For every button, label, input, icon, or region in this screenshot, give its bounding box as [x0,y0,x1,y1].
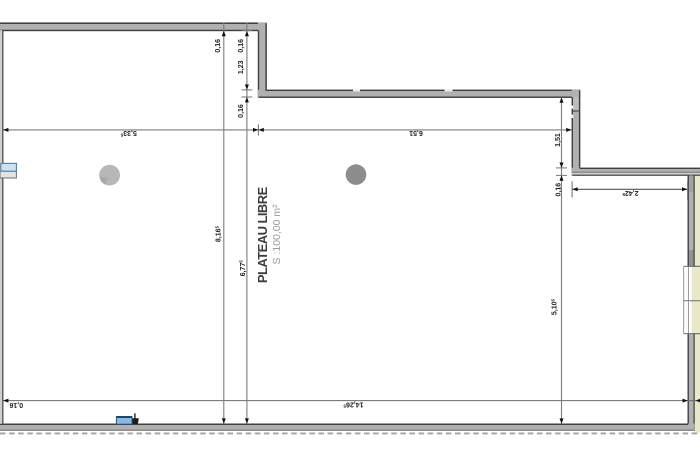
svg-text:0,16: 0,16 [555,183,562,197]
svg-text:0,16: 0,16 [238,104,245,118]
svg-text:14,265: 14,265 [343,401,364,409]
svg-text:PLATEAU LIBRE: PLATEAU LIBRE [255,186,270,283]
svg-text:1,51: 1,51 [555,133,562,147]
svg-text:0,16: 0,16 [215,39,222,53]
svg-text:6,51: 6,51 [409,129,423,136]
svg-text:0,16: 0,16 [9,401,23,408]
svg-text:0,16: 0,16 [238,39,245,53]
svg-text:S :100,00 m²: S :100,00 m² [271,204,283,265]
svg-text:1,23: 1,23 [238,60,245,74]
